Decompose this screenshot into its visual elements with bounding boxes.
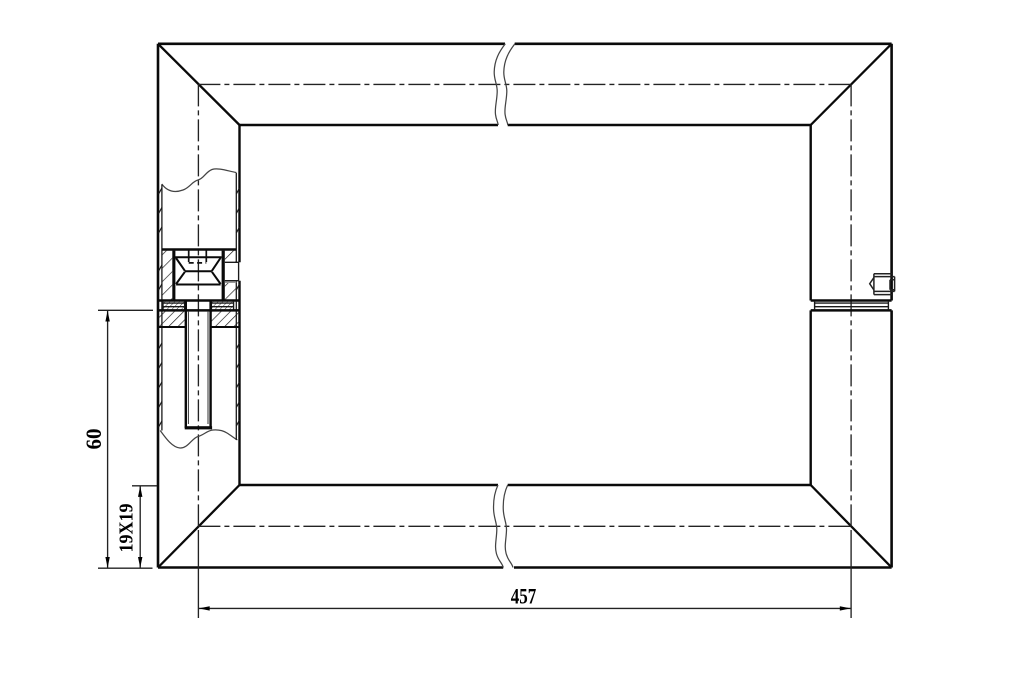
svg-text:457: 457 — [511, 584, 537, 609]
svg-text:19X19: 19X19 — [116, 504, 138, 553]
svg-text:60: 60 — [81, 429, 106, 450]
